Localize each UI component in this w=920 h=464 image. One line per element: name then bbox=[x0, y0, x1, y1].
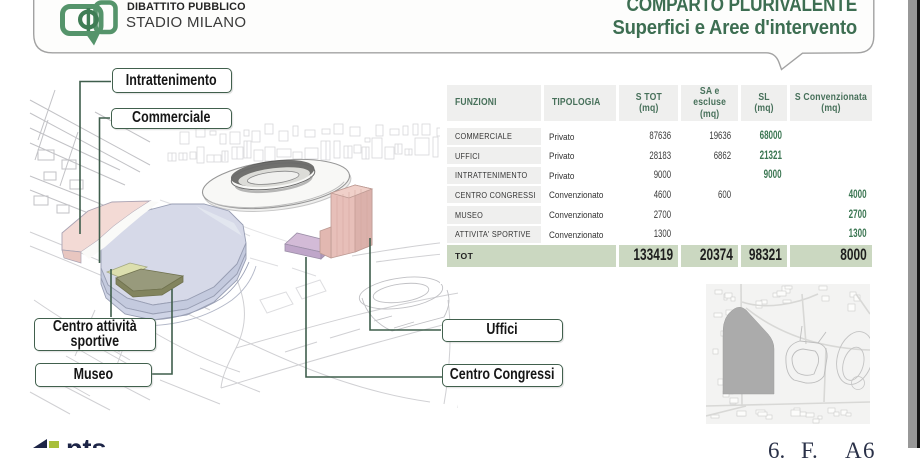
svg-text:pts: pts bbox=[66, 436, 107, 448]
